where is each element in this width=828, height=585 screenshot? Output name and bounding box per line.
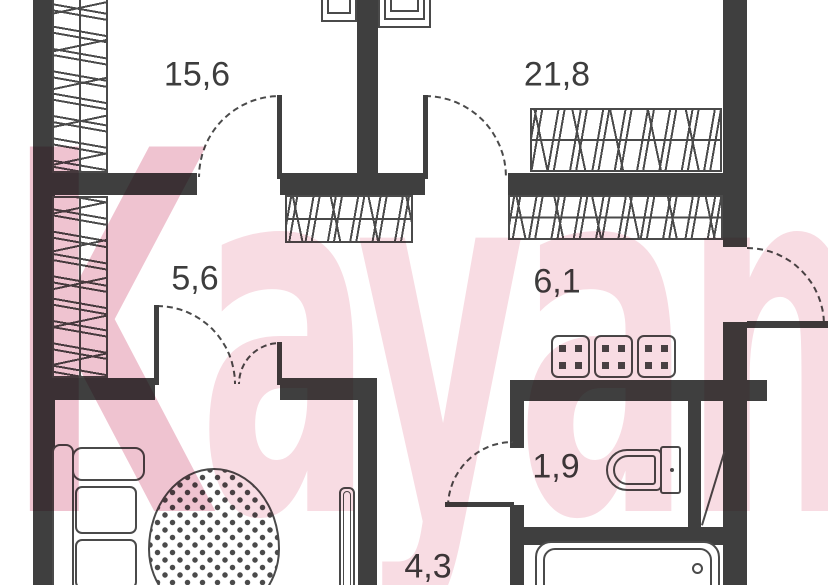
door-leaf-room-top-left [277,95,282,179]
floor-plan-canvas: 15,6 21,8 5,6 6,1 1,9 4,3 Kayan [0,0,828,585]
door-arc-room-top-right [425,95,507,177]
toilet-tank-symbol [660,446,681,494]
wall-mid-horizontal-c [508,173,747,195]
wall-mid-horizontal-b [280,173,425,195]
room-label-corridor: 4,3 [404,548,451,585]
door-arc-room-top-left [198,95,280,177]
room-label-top-right: 21,8 [524,56,590,95]
wall-wc-left-lower [510,505,524,585]
room-label-kitchen: 6,1 [533,263,580,302]
wardrobe-symbol-room-top-right [530,108,722,172]
toilet-tank-dot [670,468,674,472]
cabinet-symbol-top-b-inner2 [390,0,419,12]
door-panel-inner-line [343,491,351,585]
cabinet-symbol-top-a-inner [327,0,351,14]
wardrobe-symbol-kitchen [508,195,723,240]
wall-center-vertical [357,0,378,195]
sofa-armrest-symbol [72,447,145,481]
double-door-arc-left [157,305,236,384]
toilet-bowl-inner [613,455,656,485]
door-leaf-balcony [747,321,828,328]
sofa-cushion-symbol [75,539,137,585]
wall-mid-horizontal-a [33,173,197,195]
door-arc-wc [447,441,513,507]
stove-burner-icon [551,335,590,378]
wall-livingroom-top-a [33,378,155,400]
bathtub-drain-icon [692,563,703,574]
door-arc-balcony [747,247,825,325]
stove-burner-icon [637,335,676,378]
wall-kitchen-bottom [510,380,767,401]
wardrobe-symbol-top-left [52,0,108,173]
wardrobe-symbol-center [285,195,413,243]
room-label-wc: 1,9 [532,448,579,487]
vent-shaft-diagonal [701,451,725,525]
room-label-top-left: 15,6 [164,56,230,95]
wall-wc-right [688,401,701,527]
wardrobe-symbol-mid-left [52,196,108,378]
bathtub-inner-line [543,548,712,585]
sofa-cushion-symbol [75,486,137,534]
double-door-arc-right [238,342,280,384]
double-door-leaf-right [277,342,282,385]
rug-symbol [148,468,280,585]
wall-livingroom-right [358,378,377,585]
room-label-hallway: 5,6 [171,260,218,299]
wall-right-outer-bottom [723,322,747,585]
door-leaf-room-top-right [423,95,428,179]
double-door-leaf-left [154,305,159,385]
stove-symbol [551,335,676,378]
door-panel-open [339,487,355,585]
door-leaf-wc [445,502,514,507]
sofa-backrest-symbol [52,444,74,585]
wall-right-outer-top [723,0,747,247]
stove-burner-icon [594,335,633,378]
